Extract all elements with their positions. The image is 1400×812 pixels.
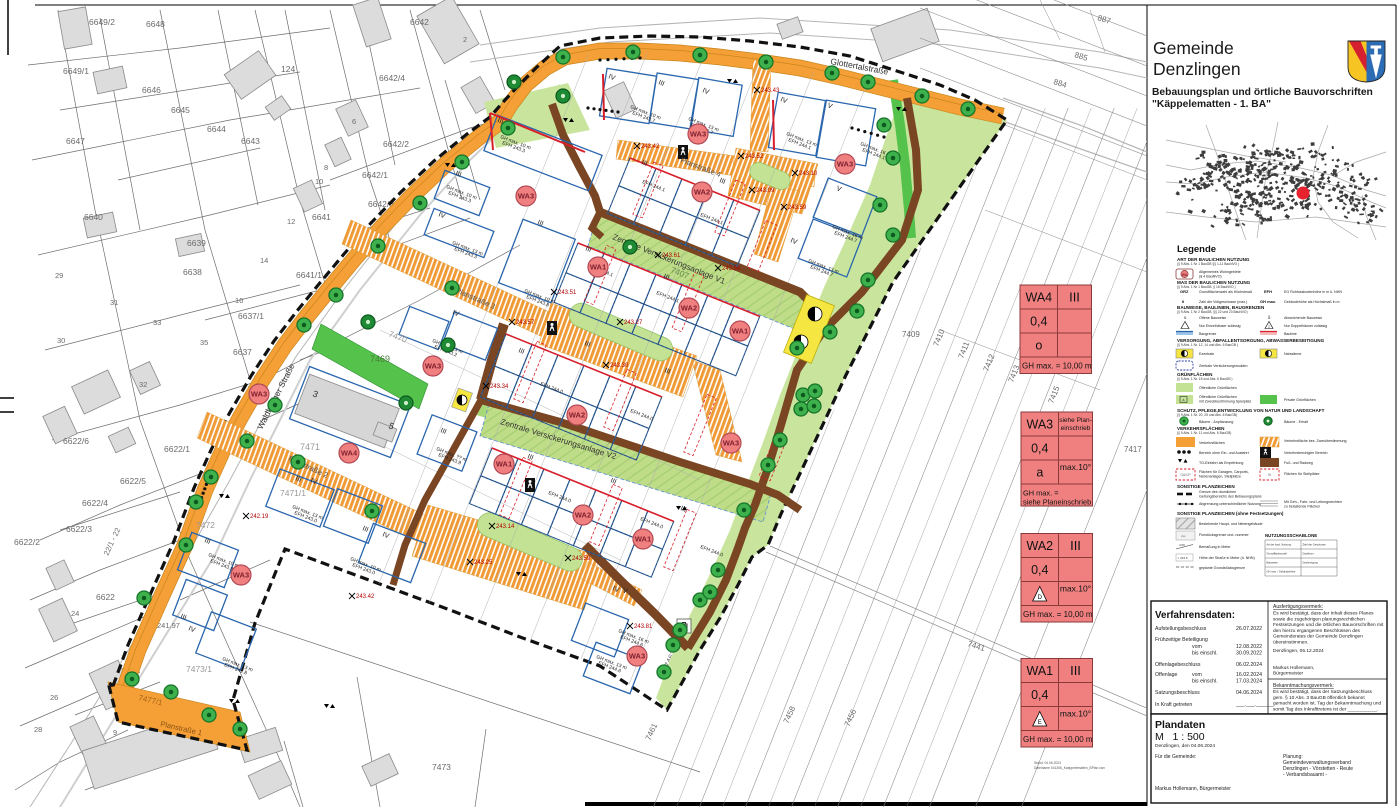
svg-text:WA1: WA1 [590, 263, 606, 272]
svg-text:Denzlingen, den 04.06.2024: Denzlingen, den 04.06.2024 [1155, 743, 1215, 749]
svg-text:GH max. =: GH max. = [1023, 489, 1059, 498]
svg-text:Bemaßung in Meter: Bemaßung in Meter [1199, 545, 1231, 549]
svg-text:Flächen für Stellplätze: Flächen für Stellplätze [1284, 472, 1320, 476]
svg-text:Ausfertigungsvermerk:: Ausfertigungsvermerk: [1273, 604, 1323, 610]
svg-text:Abgrenzung unterschiedlicher N: Abgrenzung unterschiedlicher Nutzung [1199, 502, 1261, 506]
svg-text:Art der baul. Nutzung: Art der baul. Nutzung [1267, 543, 1292, 547]
svg-text:14: 14 [260, 256, 268, 265]
svg-text:GA/CP: GA/CP [1181, 473, 1191, 477]
svg-text:Verkehrsberuhigter Bereich: Verkehrsberuhigter Bereich [1284, 451, 1328, 455]
svg-text:Flächen für Garagen, Carports,: Flächen für Garagen, Carports, [1199, 470, 1249, 474]
svg-text:geplante Grundstücksgrenze: geplante Grundstücksgrenze [1199, 566, 1245, 570]
svg-text:6637/1: 6637/1 [238, 311, 264, 321]
svg-text:Bürgermeister: Bürgermeister [1273, 671, 1304, 677]
svg-text:II: II [1182, 299, 1184, 304]
svg-text:Offenlage: Offenlage [1155, 672, 1178, 678]
svg-text:vom: vom [1192, 672, 1202, 678]
svg-text:Mit Geh-, Fahr- und Leitungsre: Mit Geh-, Fahr- und Leitungsrechten [1284, 500, 1342, 504]
svg-text:6644: 6644 [207, 124, 226, 134]
svg-text:7472: 7472 [196, 520, 215, 530]
svg-text:6643: 6643 [241, 136, 260, 146]
svg-text:12.08.2022: 12.08.2022 [1236, 644, 1262, 650]
svg-text:Geltungsbereichs des Bebauungs: Geltungsbereichs des Bebauungsplans [1199, 494, 1262, 498]
svg-text:bis einschl.: bis einschl. [1192, 679, 1218, 685]
svg-text:WA1: WA1 [635, 535, 651, 544]
svg-text:Satzungsbeschluss: Satzungsbeschluss [1155, 690, 1200, 696]
svg-text:Verkehrsfläche bes. Zweckbesti: Verkehrsfläche bes. Zweckbestimmung [1284, 439, 1347, 443]
svg-text:Gemeinde: Gemeinde [1153, 38, 1234, 58]
svg-text:Denzlingen, 06.12.2024: Denzlingen, 06.12.2024 [1273, 648, 1324, 654]
svg-text:III: III [1070, 538, 1081, 553]
svg-text:WA2: WA2 [1026, 539, 1053, 553]
svg-text:(§ 9 Abs. 1 Nr. 15 und Abs. 6: (§ 9 Abs. 1 Nr. 15 und Abs. 6 BauGB ) [1177, 377, 1233, 381]
svg-text:WA3: WA3 [518, 192, 534, 201]
svg-text:vom: vom [1192, 644, 1202, 650]
svg-text:Nur Doppelhäuser zulässig: Nur Doppelhäuser zulässig [1284, 324, 1327, 328]
svg-text:243.59: 243.59 [572, 556, 591, 562]
svg-text:243.59: 243.59 [788, 205, 807, 211]
svg-text:Bäume - Erhalt: Bäume - Erhalt [1284, 420, 1308, 424]
svg-text:Dateiname 041306_Kaeppelematte: Dateiname 041306_Kaeppelematten_BPlan.vw… [1034, 766, 1105, 770]
svg-text:WA3: WA3 [425, 362, 441, 371]
svg-text:6622/5: 6622/5 [120, 476, 146, 486]
svg-text:7473/1: 7473/1 [186, 664, 212, 674]
svg-text:Für die Gemeinde:: Für die Gemeinde: [1155, 754, 1196, 760]
svg-text:Höhe der Straße in Meter (ü. N: Höhe der Straße in Meter (ü. NHN) [1199, 556, 1255, 560]
svg-text:SONSTIGE PLANZEICHEN: SONSTIGE PLANZEICHEN [1177, 484, 1235, 489]
svg-text:GRZ: GRZ [1180, 289, 1189, 294]
svg-text:Öffentliche Grünflächen: Öffentliche Grünflächen [1199, 386, 1237, 390]
svg-text:Bauweise: Bauweise [1267, 561, 1279, 565]
svg-text:WA3: WA3 [629, 652, 645, 661]
svg-text:Bäume - Anpflanzung: Bäume - Anpflanzung [1199, 420, 1233, 424]
svg-text:Zentrale Versickerungsmulden: Zentrale Versickerungsmulden [1199, 364, 1248, 368]
svg-text:WA3: WA3 [233, 571, 249, 580]
svg-text:Nebenanlagen, Stellplätze: Nebenanlagen, Stellplätze [1199, 474, 1241, 478]
svg-text:243.42: 243.42 [641, 144, 660, 150]
svg-text:Öffentliche Grünflächen: Öffentliche Grünflächen [1199, 395, 1237, 399]
svg-text:max.10°: max.10° [1060, 584, 1091, 594]
svg-text:a: a [1036, 466, 1043, 480]
svg-text:Baugrenze: Baugrenze [1199, 332, 1216, 336]
svg-text:0,4: 0,4 [1031, 442, 1048, 456]
svg-text:6642/2: 6642/2 [383, 139, 409, 149]
svg-text:× 243.5: × 243.5 [1178, 556, 1188, 560]
svg-text:Frühzeitige Beteiligung: Frühzeitige Beteiligung [1155, 637, 1208, 643]
svg-text:Aufstellungsbeschluss: Aufstellungsbeschluss [1155, 626, 1207, 632]
svg-text:SONSTIGE PLANZEICHEN (ohne Fes: SONSTIGE PLANZEICHEN (ohne Festsetzungen… [1177, 511, 1284, 516]
svg-text:6646: 6646 [142, 85, 161, 95]
svg-text:(§ 9 Abs. 1 Nr. 20, 25 und Abs: (§ 9 Abs. 1 Nr. 20, 25 und Abs. 6 BauGB) [1177, 413, 1237, 417]
svg-text:max.10°: max.10° [1060, 709, 1091, 719]
svg-text:243.52: 243.52 [745, 154, 764, 160]
svg-text:Verkehrsflächen: Verkehrsflächen [1199, 441, 1225, 445]
svg-text:6640: 6640 [84, 212, 103, 222]
svg-text:Grundflächenzahl: Grundflächenzahl [1267, 552, 1288, 556]
svg-text:Baulinie: Baulinie [1284, 332, 1297, 336]
svg-text:WA3: WA3 [837, 160, 853, 169]
svg-text:Gebäudehöhe als Höchstmaß in m: Gebäudehöhe als Höchstmaß in m [1284, 300, 1340, 304]
svg-text:WA3: WA3 [1026, 418, 1053, 432]
svg-text:241.97: 241.97 [157, 621, 180, 630]
svg-text:EFH: EFH [1264, 289, 1272, 294]
svg-text:max.10°: max.10° [1060, 462, 1091, 472]
svg-text:124: 124 [281, 64, 295, 74]
svg-text:GH max.: GH max. [1260, 299, 1276, 304]
svg-text:Bereich ohne Ein- und Ausfahrt: Bereich ohne Ein- und Ausfahrt [1199, 451, 1249, 455]
svg-text:WA3: WA3 [251, 390, 267, 399]
svg-text:Fuß- und Radweg: Fuß- und Radweg [1284, 461, 1313, 465]
svg-text:10: 10 [315, 177, 323, 186]
svg-text:6647: 6647 [66, 136, 85, 146]
svg-text:6648: 6648 [146, 19, 165, 29]
svg-text:6622/2: 6622/2 [14, 537, 40, 547]
svg-text:GH max. / Gebäudehöhe: GH max. / Gebäudehöhe [1267, 570, 1296, 574]
svg-text:Private Grünflächen: Private Grünflächen [1284, 398, 1316, 402]
svg-text:6622/1: 6622/1 [164, 444, 190, 454]
svg-text:Abweichende Bauweise: Abweichende Bauweise [1284, 316, 1322, 320]
svg-text:mit Zweckbestimmung Spielplatz: mit Zweckbestimmung Spielplatz [1199, 399, 1252, 403]
svg-text:Allgemeines Wohngebiete: Allgemeines Wohngebiete [1199, 270, 1241, 274]
svg-text:EG Rohfussbodenhöhe in m ü. NH: EG Rohfussbodenhöhe in m ü. NHN [1284, 290, 1342, 294]
svg-text:WA4: WA4 [1025, 291, 1052, 305]
svg-text:16.02.2024: 16.02.2024 [1236, 672, 1262, 678]
svg-text:___.___.______: ___.___.______ [1235, 702, 1274, 708]
svg-text:242.19: 242.19 [250, 514, 269, 520]
svg-text:Festsetzungen und die örtliche: Festsetzungen und die örtlichen Bauvorsc… [1273, 622, 1384, 628]
svg-text:Grenze des räumlichen: Grenze des räumlichen [1199, 490, 1236, 494]
svg-text:sowie die zugehörigen planungs: sowie die zugehörigen planungsrechtliche… [1273, 616, 1365, 622]
svg-text:(§ 9 Abs. 1 Nr. 11 und Abs. 6: (§ 9 Abs. 1 Nr. 11 und Abs. 6 BauGB) [1177, 431, 1231, 435]
svg-text:0,4: 0,4 [1031, 688, 1048, 702]
svg-text:Zahl der Geschosse: Zahl der Geschosse [1303, 543, 1327, 547]
svg-text:7471: 7471 [300, 442, 320, 452]
svg-text:III: III [1069, 290, 1080, 305]
svg-text:In Kraft getreten: In Kraft getreten [1155, 702, 1192, 708]
svg-text:29: 29 [55, 271, 63, 280]
svg-text:Markus Hollemann, Bürgermeiste: Markus Hollemann, Bürgermeister [1155, 786, 1231, 792]
svg-text:6622: 6622 [96, 592, 115, 602]
svg-text:6638: 6638 [183, 267, 202, 277]
svg-text:243.27: 243.27 [624, 320, 643, 326]
svg-text:Dachneigung: Dachneigung [1303, 561, 1319, 565]
svg-text:NUTZUNGSSCHABLONE: NUTZUNGSSCHABLONE [1265, 533, 1317, 538]
svg-text:III: III [1070, 663, 1081, 678]
svg-text:gemacht worden ist. Tag der Be: gemacht worden ist. Tag der Bekanntmachu… [1273, 701, 1382, 707]
svg-text:6649/1: 6649/1 [63, 66, 89, 76]
svg-text:WA: WA [1182, 273, 1188, 277]
svg-text:243.81: 243.81 [634, 624, 653, 630]
svg-text:Stand: 04.06.2024: Stand: 04.06.2024 [1034, 761, 1061, 765]
svg-text:GRÜNFLÄCHEN: GRÜNFLÄCHEN [1177, 371, 1213, 377]
svg-text:einschrieb: einschrieb [1061, 425, 1091, 432]
svg-text:0,4: 0,4 [1031, 563, 1048, 577]
svg-text:6622/4: 6622/4 [82, 498, 108, 508]
svg-text:243.42: 243.42 [356, 594, 375, 600]
svg-text:Plandaten: Plandaten [1155, 719, 1205, 731]
svg-text:243.43: 243.43 [761, 88, 780, 94]
svg-text:32: 32 [139, 380, 147, 389]
svg-text:7417: 7417 [1124, 445, 1142, 454]
svg-text:6641/1: 6641/1 [296, 270, 322, 280]
svg-text:"Käppelematten - 1. BA": "Käppelematten - 1. BA" [1152, 99, 1271, 110]
svg-text:WA3: WA3 [723, 439, 739, 448]
svg-text:gem. § 10 Abs. 3 BauGB öffentl: gem. § 10 Abs. 3 BauGB öffentlich bekann… [1273, 695, 1365, 701]
svg-text:17.03.2024: 17.03.2024 [1236, 679, 1262, 685]
svg-text:Bekanntmachungsvermerk:: Bekanntmachungsvermerk: [1273, 683, 1334, 689]
svg-text:28: 28 [34, 725, 42, 734]
svg-text:xxx: xxx [1181, 534, 1186, 538]
svg-text:9: 9 [113, 728, 117, 737]
svg-text:(§ 9 Abs. 1 Nr 1 BauGB §§ 1-1: (§ 9 Abs. 1 Nr 1 BauGB §§ 1-11 BauNVO ) [1177, 262, 1239, 266]
svg-text:Es wird bestätigt, dass der In: Es wird bestätigt, dass der Inhalt diese… [1273, 611, 1374, 617]
svg-text:siehe Plan-: siehe Plan- [1059, 417, 1092, 424]
svg-text:6639: 6639 [187, 238, 206, 248]
svg-text:WA3: WA3 [690, 130, 706, 139]
svg-text:6641: 6641 [312, 212, 331, 222]
svg-text:somit Tag des Inkrafttretens i: somit Tag des Inkrafttretens ist der ___… [1273, 706, 1378, 712]
svg-text:12: 12 [287, 217, 295, 226]
svg-text:(§ 9 Abs. 1 Nr. 12, 14 und Abs: (§ 9 Abs. 1 Nr. 12, 14 und Abs. 6 BauGB … [1177, 343, 1238, 347]
svg-text:243.61: 243.61 [662, 253, 681, 259]
svg-text:6642/1: 6642/1 [362, 170, 388, 180]
svg-text:(§ 9 Abs. 1 Nr 2 BauGB, §§ 22: (§ 9 Abs. 1 Nr 2 BauGB, §§ 22 und 23 Bau… [1177, 310, 1248, 314]
svg-text:WA2: WA2 [569, 411, 585, 420]
svg-text:St: St [1268, 473, 1271, 477]
svg-text:Offene Bauweise: Offene Bauweise [1199, 316, 1226, 320]
svg-text:243.57: 243.57 [516, 320, 535, 326]
svg-text:30: 30 [57, 336, 65, 345]
svg-text:M 1 : 500: M 1 : 500 [1155, 731, 1205, 743]
svg-text:243.56: 243.56 [722, 266, 741, 272]
svg-text:Ezentrale: Ezentrale [1199, 352, 1214, 356]
svg-text:16: 16 [235, 296, 243, 305]
svg-text:7469: 7469 [370, 354, 390, 364]
svg-text:6642: 6642 [410, 17, 429, 27]
svg-text:WA1: WA1 [1026, 664, 1053, 678]
svg-text:WA2: WA2 [575, 511, 591, 520]
svg-text:7473: 7473 [432, 762, 451, 772]
svg-text:Es wird bestätigt, dass der Sa: Es wird bestätigt, dass der Satzungsbesc… [1273, 689, 1373, 695]
svg-text:Nahwärme: Nahwärme [1284, 352, 1301, 356]
svg-text:Markus Hollemann,: Markus Hollemann, [1273, 665, 1314, 671]
svg-text:zu belastende Flächen: zu belastende Flächen [1284, 504, 1320, 508]
svg-text:243.25: 243.25 [474, 560, 493, 566]
svg-text:D: D [1038, 595, 1043, 601]
svg-text:2: 2 [463, 35, 467, 44]
svg-text:6622/6: 6622/6 [63, 436, 89, 446]
svg-text:(§ 4 BauNVO): (§ 4 BauNVO) [1199, 274, 1222, 278]
svg-text:243.51: 243.51 [558, 290, 577, 296]
svg-text:Offenlagebeschluss: Offenlagebeschluss [1155, 662, 1201, 668]
svg-text:WA4: WA4 [341, 449, 358, 458]
svg-text:- Verbandsbauamt -: - Verbandsbauamt - [1283, 772, 1327, 778]
svg-text:bis einschl.: bis einschl. [1192, 651, 1218, 657]
svg-text:E: E [1038, 720, 1042, 726]
svg-text:33: 33 [153, 318, 161, 327]
svg-text:Gemeinderates der Gemeinde Den: Gemeinderates der Gemeinde Denzlingen [1273, 634, 1363, 640]
svg-text:6622/3: 6622/3 [66, 524, 92, 534]
svg-text:siehe Planeinschrieb: siehe Planeinschrieb [1023, 498, 1091, 507]
svg-text:243.09: 243.09 [756, 188, 775, 194]
svg-text:4,50: 4,50 [1179, 543, 1185, 547]
svg-text:243.14: 243.14 [496, 524, 515, 530]
svg-text:6637: 6637 [233, 347, 252, 357]
svg-text:Dachform: Dachform [1303, 552, 1314, 556]
svg-text:243.34: 243.34 [490, 384, 509, 390]
svg-text:26: 26 [50, 693, 58, 702]
svg-text:WA2: WA2 [694, 188, 710, 197]
svg-text:6: 6 [352, 117, 356, 126]
svg-text:GH max. = 10,00 m: GH max. = 10,00 m [1023, 610, 1093, 619]
svg-text:GH max. = 10,00 m: GH max. = 10,00 m [1022, 362, 1092, 371]
svg-text:Zahl der Vollgeschosse (max.): Zahl der Vollgeschosse (max.) [1199, 300, 1247, 304]
svg-text:04.06.2024: 04.06.2024 [1236, 690, 1262, 696]
svg-text:Nur Einzelhäuser zulässig: Nur Einzelhäuser zulässig [1199, 324, 1241, 328]
svg-text:26.07.2022: 26.07.2022 [1236, 626, 1262, 632]
svg-text:7409: 7409 [902, 330, 920, 339]
svg-text:GH max. = 10,00 m: GH max. = 10,00 m [1023, 735, 1093, 744]
svg-text:8: 8 [324, 163, 328, 172]
svg-text:31: 31 [110, 298, 118, 307]
svg-text:Verfahrensdaten:: Verfahrensdaten: [1155, 610, 1235, 621]
svg-text:Denzlingen: Denzlingen [1153, 59, 1241, 79]
svg-text:35: 35 [200, 338, 208, 347]
svg-text:7471/1: 7471/1 [280, 488, 306, 498]
svg-text:übereinstimmen.: übereinstimmen. [1273, 640, 1308, 646]
svg-text:o: o [1035, 339, 1042, 353]
svg-text:Flurstücksgrenze und -nummer: Flurstücksgrenze und -nummer [1199, 533, 1250, 537]
svg-text:Legende: Legende [1177, 244, 1216, 255]
svg-text:WA1: WA1 [496, 460, 512, 469]
svg-text:6645: 6645 [171, 105, 190, 115]
svg-text:den hierzu ergangenen Beschlüs: den hierzu ergangenen Beschlüssen des [1273, 628, 1361, 634]
svg-text:6649/2: 6649/2 [89, 17, 115, 27]
svg-text:Bestehende Haupt- und Nebengeb: Bestehende Haupt- und Nebengebäude [1199, 522, 1263, 526]
svg-text:24: 24 [71, 609, 79, 618]
svg-text:WA1: WA1 [732, 327, 748, 336]
svg-text:Bebauungsplan und örtliche Bau: Bebauungsplan und örtliche Bauvorschrift… [1152, 87, 1373, 98]
svg-text:243.30: 243.30 [610, 363, 629, 369]
svg-text:0,4: 0,4 [1030, 315, 1047, 329]
svg-text:Grundflächenzahl als Höchstmaß: Grundflächenzahl als Höchstmaß [1199, 290, 1253, 294]
svg-text:TG-Einfahrt als Empfehlung: TG-Einfahrt als Empfehlung [1199, 461, 1243, 465]
svg-text:30.09.2022: 30.09.2022 [1236, 651, 1262, 657]
svg-text:6642/4: 6642/4 [379, 73, 405, 83]
svg-text:243.10: 243.10 [799, 171, 818, 177]
svg-text:VERKEHRSFLÄCHEN: VERKEHRSFLÄCHEN [1177, 425, 1225, 431]
svg-text:WA2: WA2 [681, 304, 697, 313]
svg-text:06.02.2024: 06.02.2024 [1236, 662, 1262, 668]
